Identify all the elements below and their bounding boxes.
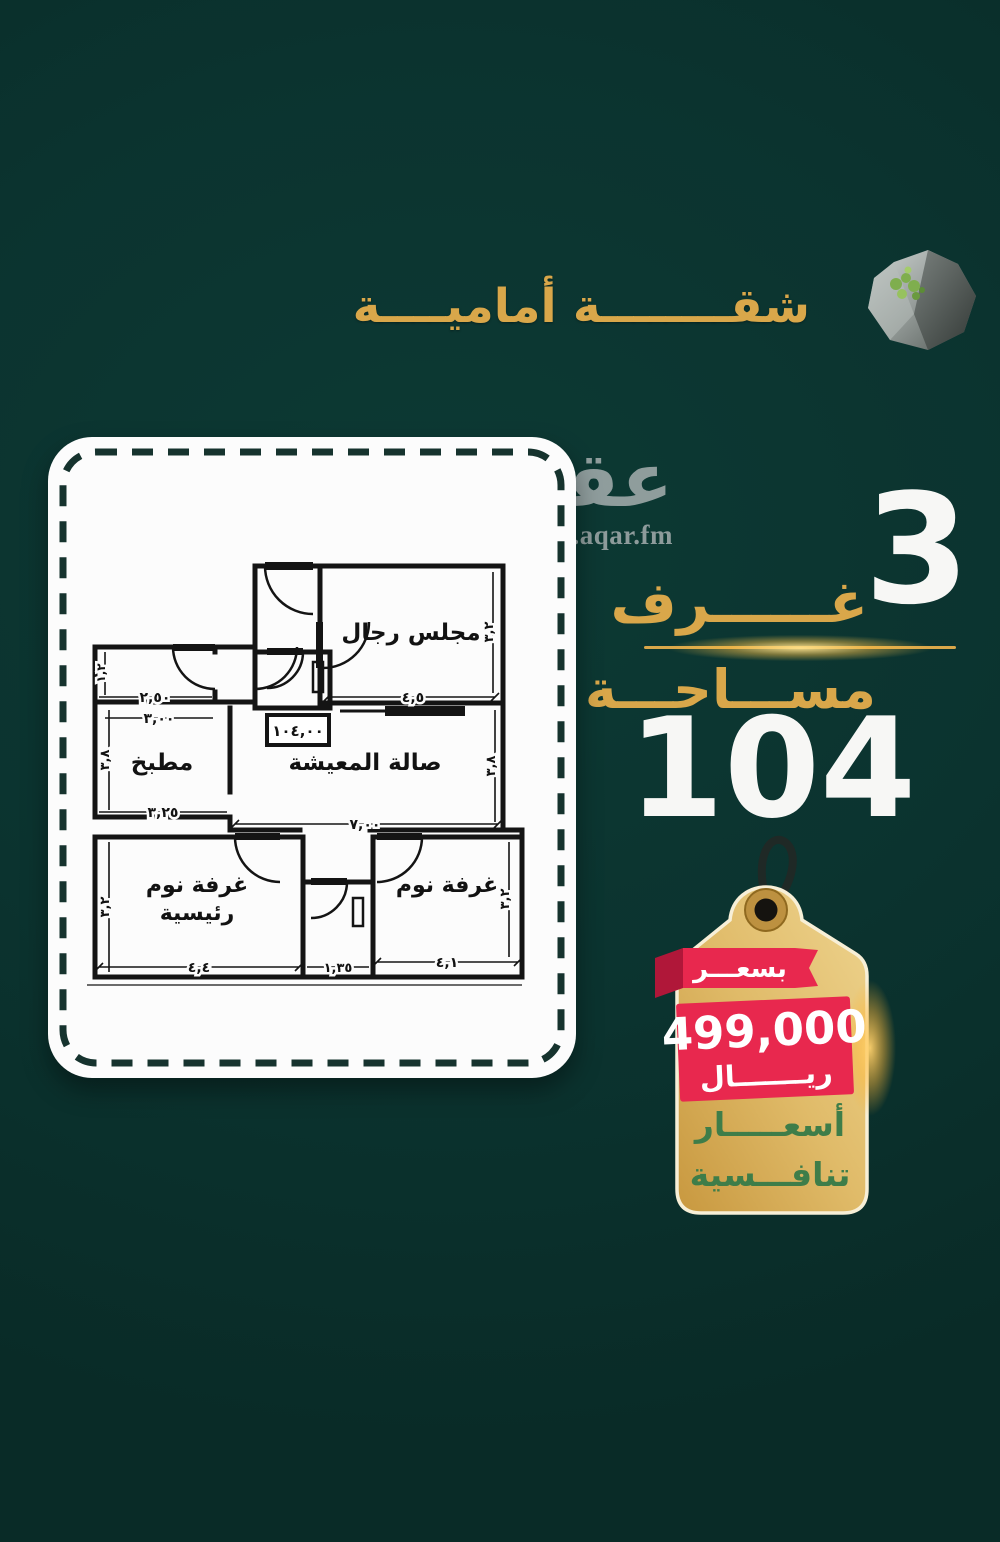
dim-wc-width: ١,٣٥ [324,961,353,976]
room-label-bedroom: غرفة نوم [396,873,498,898]
dim-bedroom-height: ٣,٢ [498,889,513,910]
room-label-master-2: رئيسية [160,901,235,926]
dim-master-height: ٣,٢ [98,897,113,918]
floorplan-drawing: ١٠٤,٠٠ مجلس رجال صالة المعيشة مطبخ غرفة … [85,560,525,990]
dim-majlis-height: ٣,٢ [482,622,497,643]
price-value: 499,000 [661,1000,868,1062]
rooms-count: 3 [862,474,972,626]
tag-note-line2: تنافـــسية [690,1155,851,1194]
dim-living-width: ٧,٠٠ [350,817,381,833]
dim-living-height: ٣,٨ [484,756,499,777]
poster: { "poster": { "background_color": "#0b33… [0,0,1000,1542]
rooms-label: غــــــرف [640,570,868,636]
dim-master-width: ٤,٤ [188,960,210,976]
room-label-master-1: غرفة نوم [146,873,248,898]
dim-kitchen-top: ٣,٠٠ [144,711,175,727]
area-value: 104 [628,700,886,838]
rock-image [856,244,984,356]
area-box-value: ١٠٤,٠٠ [272,722,323,740]
dim-majlis-width: ٤,٥ [402,690,424,706]
ribbon-label: بسعـــر [691,954,787,984]
dim-kitchen-height: ٣,٨ [98,750,113,771]
dim-service-width: ٢,٥٠ [140,690,171,706]
dim-bedroom-width: ٤,١ [436,955,458,971]
room-label-kitchen: مطبخ [131,750,194,776]
tag-hole [755,899,778,922]
room-label-living: صالة المعيشة [288,750,441,776]
room-label-majlis: مجلس رجال [341,620,480,646]
floorplan-card: ١٠٤,٠٠ مجلس رجال صالة المعيشة مطبخ غرفة … [48,437,576,1078]
dim-kitchen-bottom: ٣,٢٥ [148,805,179,821]
page-title: شقــــــــة أماميــــة [330,281,810,333]
price-panel: 499,000 ريـــــــال [660,996,869,1103]
tag-note-line1: أسعـــــار [693,1103,845,1144]
dim-service-height: ١,٢ [94,663,108,683]
price-currency: ريـــــــال [699,1055,833,1095]
price-tag: بسعـــر 499,000 ريـــــــال أسعـــــار ت… [630,820,900,1230]
